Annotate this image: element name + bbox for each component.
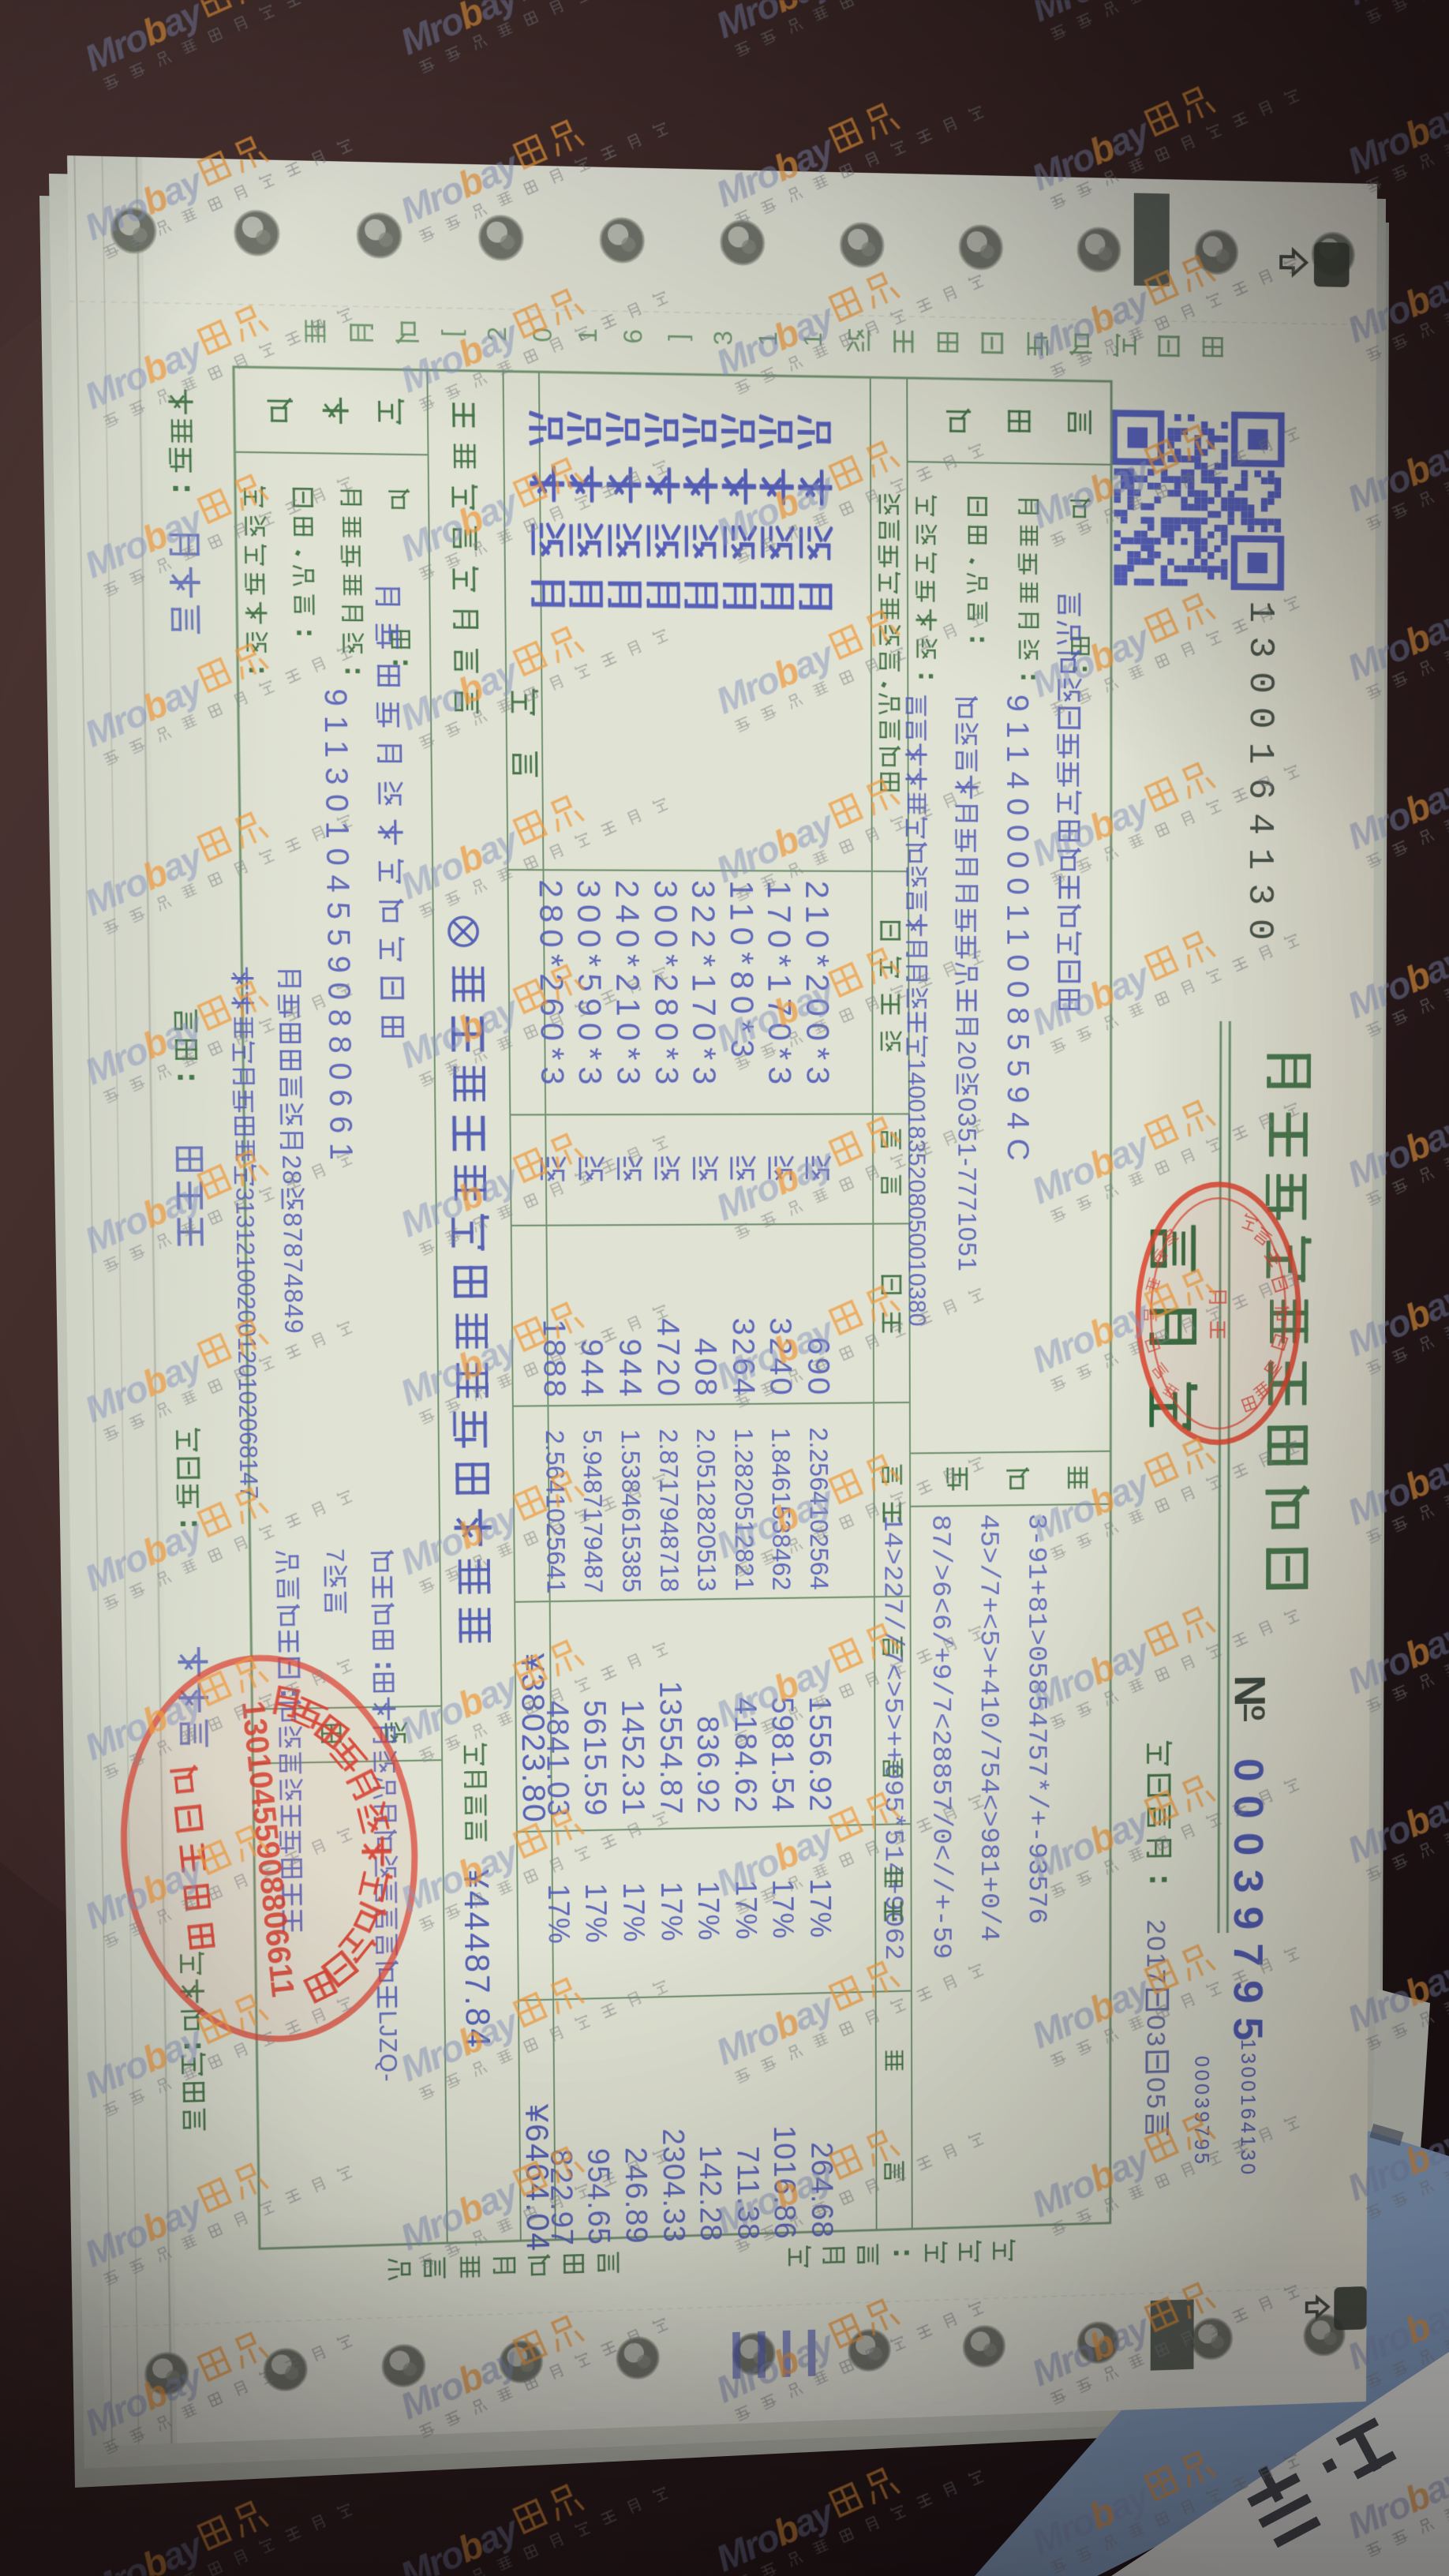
svg-text:[: [ — [437, 329, 466, 337]
svg-text:246.89: 246.89 — [619, 2147, 654, 2245]
svg-text:6: 6 — [619, 329, 648, 344]
svg-text:17%: 17% — [766, 1879, 799, 1940]
svg-text:2304.33: 2304.33 — [656, 2128, 691, 2244]
svg-text:0: 0 — [528, 328, 557, 343]
svg-text:5.9487179487: 5.9487179487 — [578, 1429, 608, 1593]
svg-text:3-91+81>05854757*/+-93576: 3-91+81>05854757*/+-93576 — [1020, 1513, 1051, 1924]
svg-text:5981.54: 5981.54 — [766, 1697, 801, 1814]
svg-text:o: o — [1245, 1705, 1274, 1721]
svg-text:1556.92: 1556.92 — [803, 1696, 838, 1813]
svg-text:00039795: 00039795 — [1225, 1758, 1272, 2054]
svg-text:1.2820512821: 1.2820512821 — [728, 1428, 758, 1591]
svg-text:210*200*3: 210*200*3 — [799, 881, 836, 1091]
svg-text:911301045590880661: 911301045590880661 — [317, 688, 359, 1169]
svg-text:00039795: 00039795 — [1190, 2055, 1213, 2166]
svg-text:05: 05 — [1141, 2077, 1171, 2111]
svg-text:954.65: 954.65 — [582, 2147, 617, 2245]
svg-text:¥38023.80: ¥38023.80 — [514, 1653, 552, 1825]
svg-text:87874849: 87874849 — [277, 1212, 308, 1335]
svg-text:1.5384615385: 1.5384615385 — [616, 1429, 646, 1593]
svg-text:944: 944 — [574, 1339, 610, 1399]
svg-text:14001835208050010380: 14001835208050010380 — [903, 1058, 930, 1327]
svg-text:17%: 17% — [692, 1881, 725, 1941]
svg-text:45>/7+<5>+410/754<>981+0/4: 45>/7+<5>+410/754<>981+0/4 — [972, 1514, 1004, 1942]
svg-text:2017: 2017 — [1141, 1919, 1172, 1986]
svg-text:2.2564102564: 2.2564102564 — [804, 1427, 833, 1590]
svg-text:1888: 1888 — [536, 1319, 573, 1399]
svg-text:03: 03 — [1141, 2015, 1171, 2049]
svg-text:408: 408 — [687, 1338, 724, 1398]
svg-text:2: 2 — [483, 327, 512, 342]
svg-text:17%: 17% — [654, 1881, 687, 1942]
svg-text:¥6464.04: ¥6464.04 — [519, 2103, 556, 2253]
svg-text:2.0512820513: 2.0512820513 — [691, 1428, 721, 1592]
svg-text:300*590*3: 300*590*3 — [570, 879, 608, 1091]
svg-text:14>227//7<>5>++095*514+9062: 14>227//7<>5>++095*514+9062 — [876, 1515, 908, 1961]
svg-text:110*80*3: 110*80*3 — [723, 880, 761, 1064]
svg-text:1: 1 — [799, 332, 827, 347]
svg-text:1016.86: 1016.86 — [768, 2125, 803, 2240]
svg-text:3264: 3264 — [725, 1317, 762, 1398]
svg-text:91140000110085594C: 91140000110085594C — [1001, 695, 1036, 1170]
svg-text:20: 20 — [953, 1041, 981, 1071]
svg-text:2.5641025641: 2.5641025641 — [540, 1430, 570, 1594]
svg-text:1.8461538462: 1.8461538462 — [766, 1428, 796, 1591]
svg-text:264.68: 264.68 — [805, 2141, 840, 2239]
svg-text:13554.87: 13554.87 — [653, 1680, 688, 1815]
svg-text:711.38: 711.38 — [731, 2146, 766, 2241]
svg-text:5615.59: 5615.59 — [578, 1700, 614, 1817]
svg-text:0351-7771051: 0351-7771051 — [953, 1098, 981, 1272]
svg-text:1300164130: 1300164130 — [1239, 601, 1281, 954]
svg-text:31312100200120102068147: 31312100200120102068147 — [230, 1187, 262, 1499]
svg-text:322*170*3: 322*170*3 — [684, 880, 722, 1091]
svg-text:280*260*3: 280*260*3 — [532, 879, 571, 1091]
svg-text:1300164130: 1300164130 — [1237, 2039, 1260, 2177]
svg-text:17%: 17% — [541, 1884, 575, 1945]
svg-text:690: 690 — [800, 1337, 836, 1397]
svg-text:87/>6<6/+9/7<28857/0<//+-59: 87/>6<6/+9/7<28857/0<//+-59 — [924, 1515, 956, 1960]
svg-text:1452.31: 1452.31 — [616, 1699, 651, 1816]
svg-text:300*280*3: 300*280*3 — [646, 880, 685, 1091]
svg-text:170*170*3: 170*170*3 — [761, 880, 799, 1091]
svg-text:N: N — [1226, 1675, 1275, 1707]
svg-text:1: 1 — [574, 328, 603, 343]
svg-text:]: ] — [664, 333, 693, 341]
svg-text:3240: 3240 — [763, 1317, 799, 1398]
svg-text:7: 7 — [320, 1548, 349, 1563]
svg-text:4184.62: 4184.62 — [728, 1697, 764, 1814]
svg-text:4720: 4720 — [650, 1318, 686, 1398]
svg-text:LJZQ-: LJZQ- — [373, 2010, 402, 2083]
svg-text:17%: 17% — [729, 1880, 762, 1941]
svg-text:28: 28 — [276, 1155, 305, 1185]
svg-text:17%: 17% — [579, 1883, 612, 1944]
svg-text:944: 944 — [612, 1339, 648, 1399]
svg-text:17%: 17% — [617, 1882, 650, 1943]
svg-text:836.92: 836.92 — [691, 1716, 726, 1814]
svg-text:1: 1 — [754, 331, 783, 346]
svg-text:142.28: 142.28 — [694, 2144, 729, 2242]
svg-text:¥44487.84: ¥44487.84 — [457, 1868, 497, 2050]
svg-text:2.8717948718: 2.8717948718 — [653, 1428, 683, 1592]
svg-text:17%: 17% — [803, 1878, 836, 1938]
svg-text:240*210*3: 240*210*3 — [608, 880, 647, 1091]
svg-text:3: 3 — [710, 331, 739, 346]
